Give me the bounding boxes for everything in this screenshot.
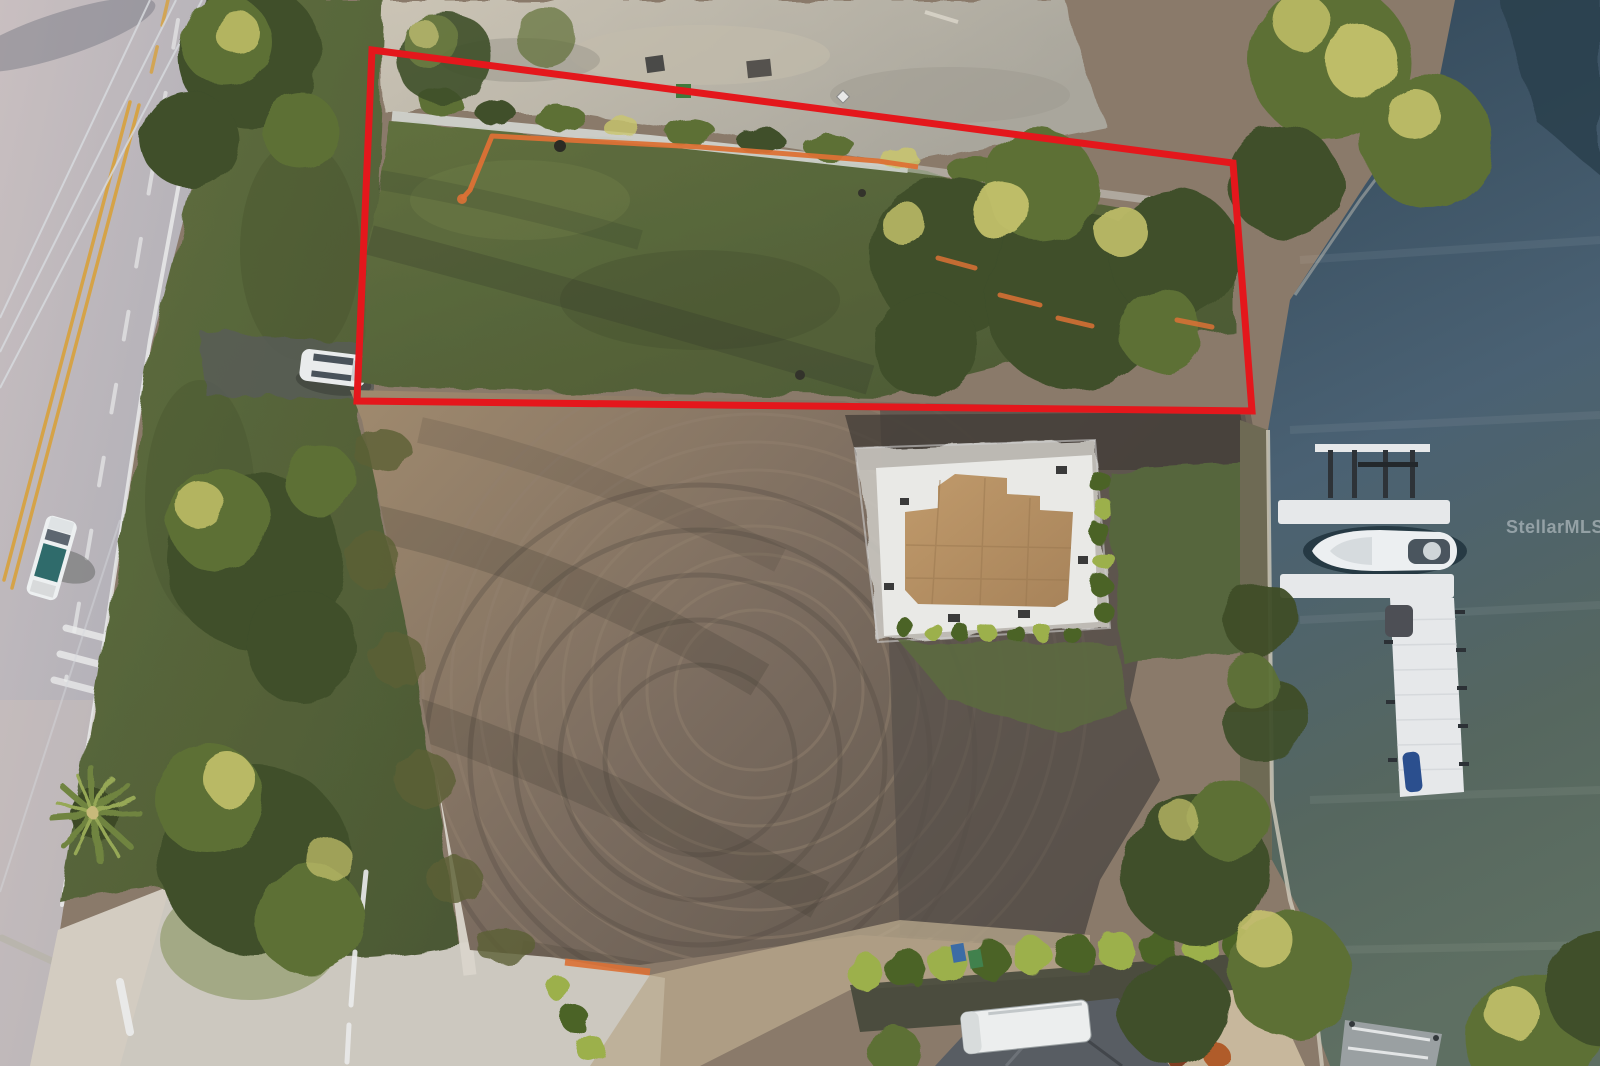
catwalk-north <box>1278 500 1450 524</box>
stump <box>554 140 566 152</box>
stump <box>858 189 866 197</box>
catwalk-south <box>1280 574 1454 598</box>
neighbor-tree <box>869 1026 921 1066</box>
dock-box <box>1385 605 1413 637</box>
debris-box <box>746 59 772 78</box>
photo-canvas <box>0 0 1600 1066</box>
palm-tree <box>52 772 138 858</box>
boat-helm <box>1423 542 1441 560</box>
stump <box>795 370 805 380</box>
aerial-photo: StellarMLS <box>0 0 1600 1066</box>
debris-box <box>645 55 665 73</box>
